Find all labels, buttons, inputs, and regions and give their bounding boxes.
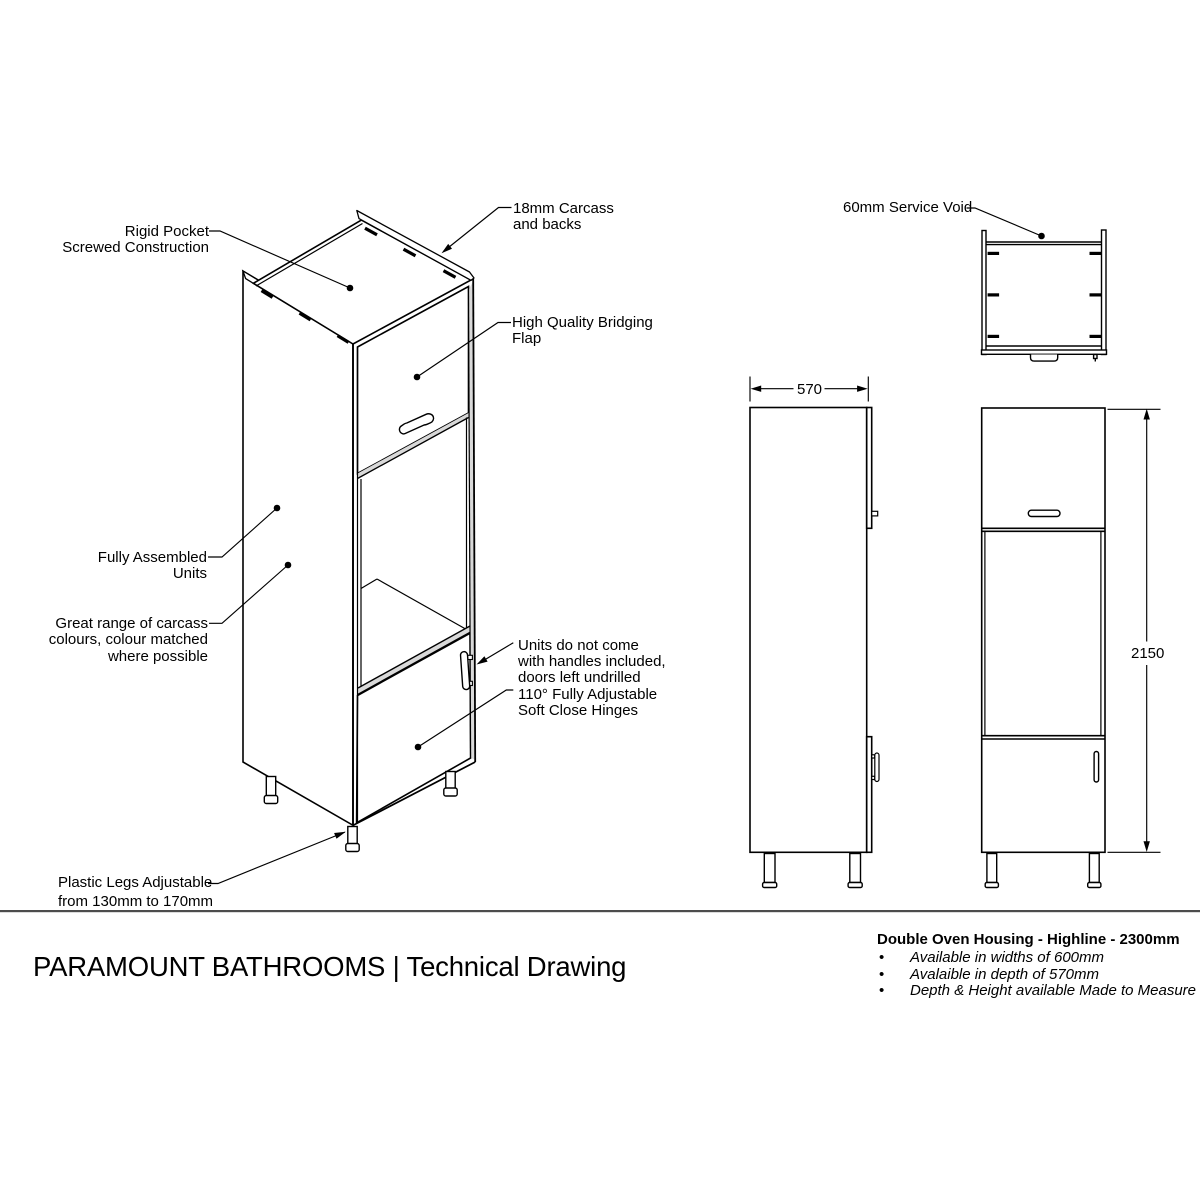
annotation-line: Fully Assembled xyxy=(98,550,207,566)
annotation-line: colours, colour matched xyxy=(49,632,208,648)
side-carcass xyxy=(750,408,867,853)
annotation-rigid-pocket: Rigid Pocket Screwed Construction xyxy=(62,224,209,257)
annotation-line: Screwed Construction xyxy=(62,240,209,256)
annotation-line: 18mm Carcass xyxy=(513,201,614,217)
annotation-line: Great range of carcass xyxy=(49,616,208,632)
dimension-label-570: 570 xyxy=(794,381,825,398)
bullet-icon: • xyxy=(877,983,910,1000)
side-view xyxy=(750,408,879,888)
plan-right-side-panel xyxy=(1102,230,1107,355)
side-door-handle xyxy=(872,753,879,782)
annotation-line: where possible xyxy=(49,649,208,665)
leader-dot-fully-assembled xyxy=(274,505,281,512)
annotation-line: 110° Fully Adjustable xyxy=(518,687,666,703)
dimension-2150 xyxy=(1108,409,1161,853)
page-title: PARAMOUNT BATHROOMS | Technical Drawing xyxy=(33,951,626,983)
plan-pocket-screw-marks xyxy=(988,252,1101,338)
annotation-line: doors left undrilled xyxy=(518,670,666,686)
technical-drawing-page: Rigid Pocket Screwed Construction 18mm C… xyxy=(0,0,1200,1200)
plan-handle xyxy=(1031,355,1058,362)
annotation-line: Units do not come xyxy=(518,638,666,654)
side-bottom-door-edge xyxy=(867,737,872,853)
annotation-service-void: 60mm Service Void xyxy=(843,200,972,216)
spec-item: • Avalaible in depth of 570mm xyxy=(877,967,1197,984)
annotation-carcass: 18mm Carcass and backs xyxy=(513,201,614,234)
leader-dot-carcass-colours xyxy=(285,562,292,569)
front-flap-handle xyxy=(1028,510,1060,516)
annotation-line: with handles included, xyxy=(518,654,666,670)
spec-item-text: Available in widths of 600mm xyxy=(910,950,1104,967)
spec-item-text: Avalaible in depth of 570mm xyxy=(910,967,1099,984)
technical-drawing-canvas xyxy=(0,0,1200,1200)
annotation-carcass-colours: Great range of carcass colours, colour m… xyxy=(49,616,208,665)
side-flap-handle-nub xyxy=(872,511,878,516)
plan-view xyxy=(982,230,1107,362)
front-legs xyxy=(985,854,1101,888)
leader-carcass xyxy=(444,208,512,252)
annotation-line: from 130mm to 170mm xyxy=(58,893,213,912)
annotation-line: 60mm Service Void xyxy=(843,200,972,216)
side-legs xyxy=(763,854,863,888)
isometric-view xyxy=(243,211,475,852)
leader-plastic-legs xyxy=(208,832,345,883)
plan-hinge-peg xyxy=(1094,355,1097,359)
spec-item: • Depth & Height available Made to Measu… xyxy=(877,983,1197,1000)
front-carcass xyxy=(982,408,1105,852)
dimension-label-2150: 2150 xyxy=(1129,645,1166,662)
annotation-bridging-flap: High Quality Bridging Flap xyxy=(512,315,653,348)
bullet-icon: • xyxy=(877,967,910,984)
front-view xyxy=(982,408,1105,888)
annotation-line: and backs xyxy=(513,217,614,233)
leader-dot-service-void xyxy=(1038,233,1045,240)
leader-arrow-handles xyxy=(477,656,488,664)
iso-left-side-panel xyxy=(243,271,353,825)
annotation-handles-hinges: Units do not come with handles included,… xyxy=(518,638,666,720)
annotation-line: Units xyxy=(98,566,207,582)
annotation-line: Flap xyxy=(512,331,653,347)
leader-dot-rigid-pocket xyxy=(347,285,354,292)
leader-dot-bridging-flap xyxy=(414,374,421,381)
spec-heading: Double Oven Housing - Highline - 2300mm xyxy=(877,931,1197,948)
spec-item-text: Depth & Height available Made to Measure xyxy=(910,983,1196,1000)
annotation-line: High Quality Bridging xyxy=(512,315,653,331)
spec-item: • Available in widths of 600mm xyxy=(877,950,1197,967)
annotation-fully-assembled: Fully Assembled Units xyxy=(98,550,207,583)
spec-block: Double Oven Housing - Highline - 2300mm … xyxy=(877,931,1197,1000)
side-flap-door-edge xyxy=(867,408,872,529)
front-door-handle xyxy=(1094,752,1099,783)
plan-front-door-band xyxy=(982,350,1107,354)
leader-arrow-plastic-legs xyxy=(334,832,346,839)
leader-dot-hinges xyxy=(415,744,422,751)
bullet-icon: • xyxy=(877,950,910,967)
leader-service-void xyxy=(967,208,1042,236)
annotation-plastic-legs: Plastic Legs Adjustable from 130mm to 17… xyxy=(58,874,213,911)
annotation-line: Rigid Pocket xyxy=(62,224,209,240)
annotation-line: Plastic Legs Adjustable xyxy=(58,874,213,893)
plan-left-side-panel xyxy=(982,231,986,355)
annotation-line: Soft Close Hinges xyxy=(518,703,666,719)
